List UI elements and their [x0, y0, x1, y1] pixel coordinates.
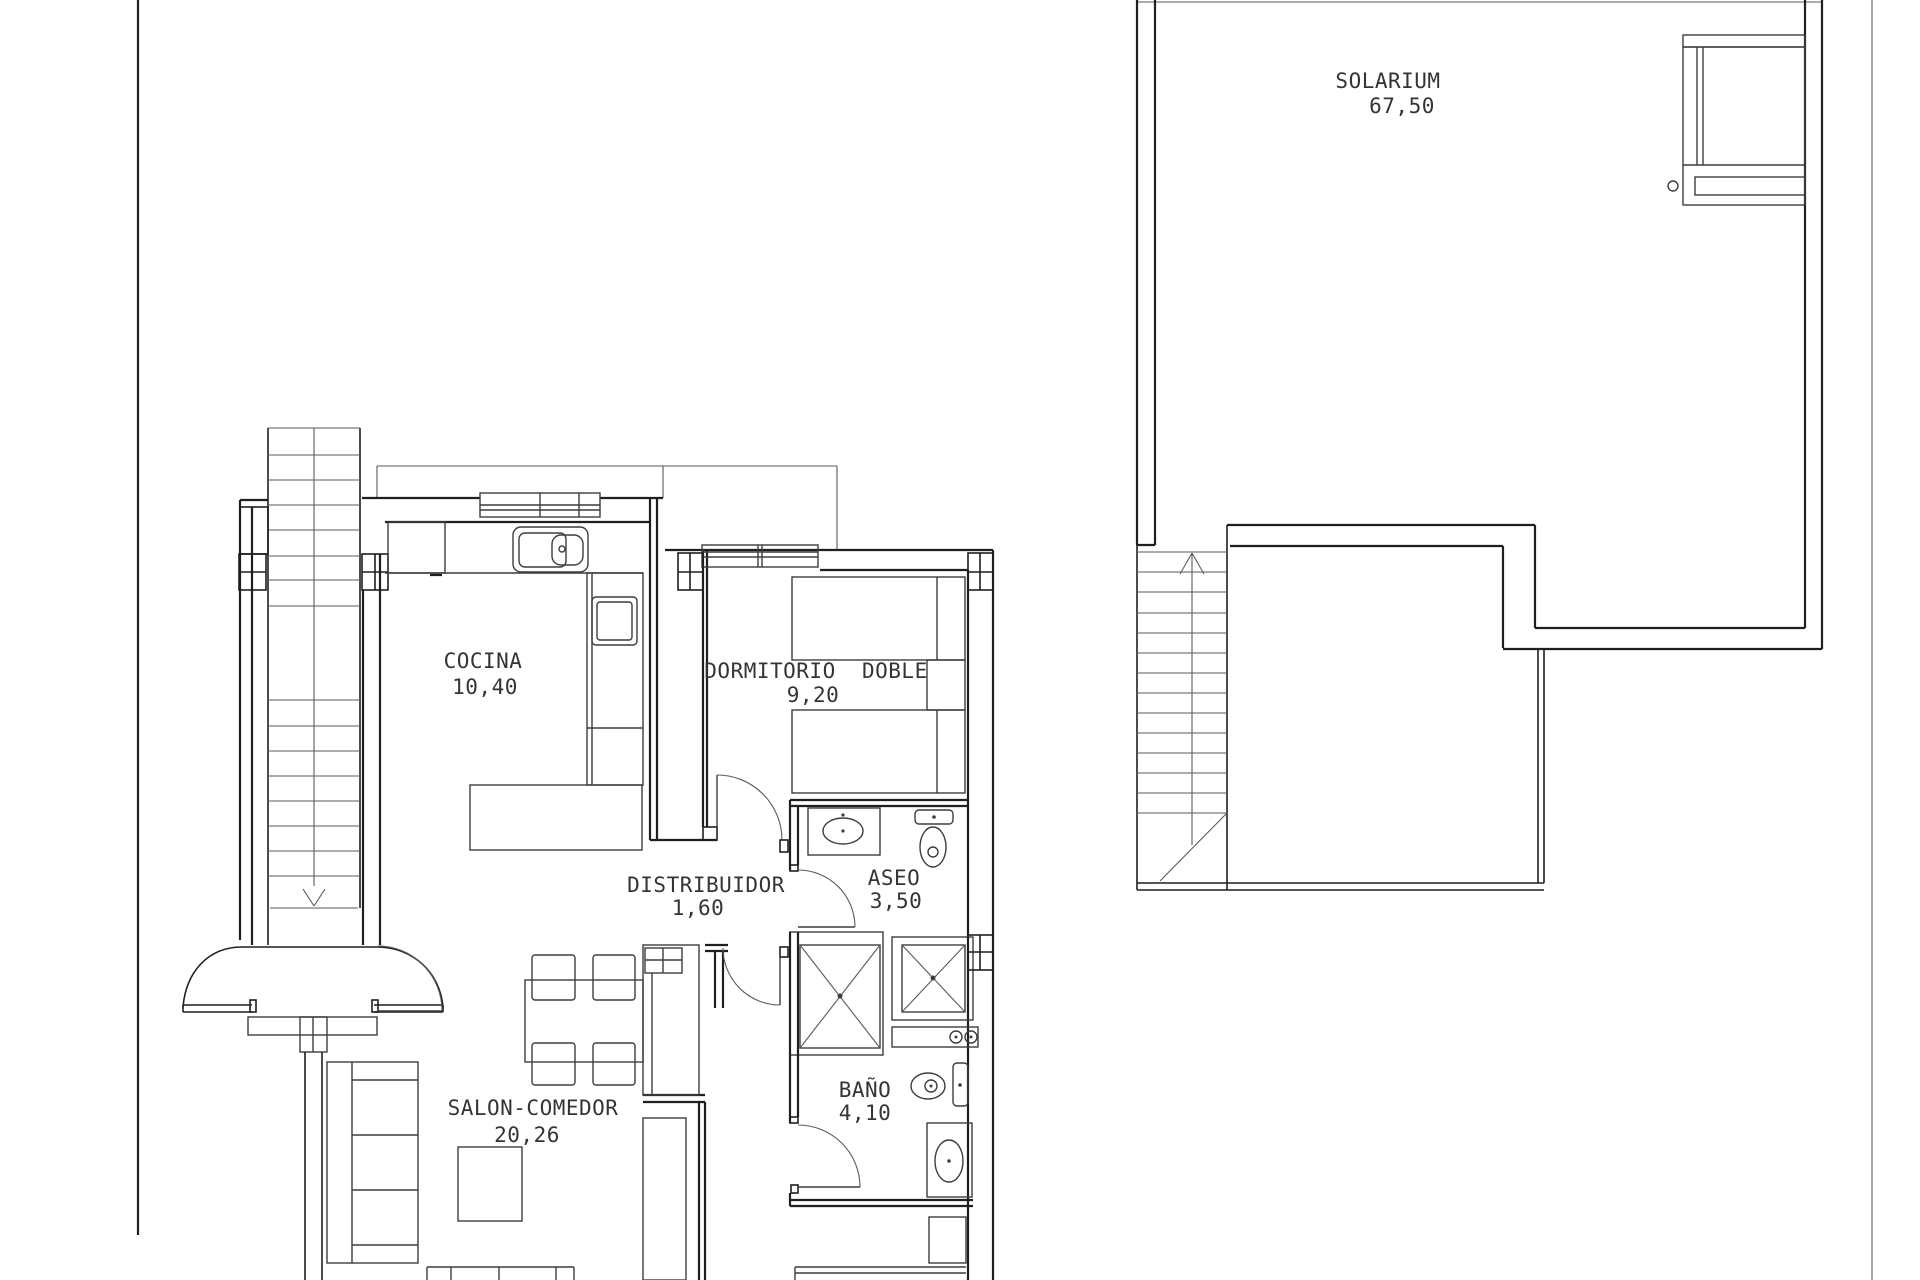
solarium-walls	[1137, 0, 1822, 649]
bed-2	[792, 710, 965, 793]
kitchen-peninsula	[470, 785, 642, 850]
room-label-bano: BAÑO	[839, 1076, 892, 1102]
door-jamb	[780, 947, 788, 957]
solarium-stairs	[1137, 525, 1227, 890]
washbasin	[808, 808, 880, 855]
room-label-aseo: ASEO	[868, 866, 921, 890]
chair	[532, 955, 575, 1000]
roof-outline	[377, 466, 837, 550]
dining-set	[525, 955, 643, 1085]
sofa	[327, 1062, 418, 1263]
room-area-aseo: 3,50	[870, 889, 923, 913]
facade-pilaster-left	[678, 553, 703, 590]
salon-hall-walls	[643, 945, 788, 1280]
door-jamb	[790, 865, 798, 871]
bedroom-2	[795, 1217, 966, 1280]
down-arrow-icon	[303, 428, 325, 906]
distribuidor: DISTRIBUIDOR 1,60	[627, 873, 785, 920]
bidet	[927, 1123, 972, 1197]
stair-cut-line	[1160, 813, 1227, 881]
solarium-planter	[1668, 35, 1805, 205]
room-label-cocina: COCINA	[444, 649, 523, 673]
door-jamb	[703, 827, 717, 840]
floor-plan-canvas: SOLARIUM 67,50	[0, 0, 1920, 1280]
kitchen-hob	[592, 597, 637, 645]
salon-door	[723, 948, 780, 1005]
kitchen: COCINA 10,40	[362, 493, 663, 850]
sideboard	[643, 945, 699, 1095]
up-arrow-icon	[1180, 553, 1204, 845]
shower-left	[790, 932, 883, 1055]
room-label-distribuidor: DISTRIBUIDOR	[627, 873, 785, 897]
wall-jamb-left	[239, 554, 266, 590]
chair	[593, 955, 635, 1000]
coffee-table	[458, 1147, 522, 1221]
chair	[593, 1043, 635, 1085]
room-area-solarium: 67,50	[1369, 94, 1435, 118]
room-area-salon: 20,26	[494, 1123, 560, 1147]
wall-jamb-right	[362, 554, 388, 590]
bedroom-door	[717, 775, 788, 852]
kitchen-window	[480, 493, 600, 517]
chair	[532, 1043, 575, 1085]
bano-walls	[790, 932, 973, 1206]
bed-1	[792, 577, 965, 660]
wall-jamb-bath	[968, 935, 993, 970]
room-label-dormitorio: DORMITORIO DOBLE	[704, 659, 927, 683]
bedroom-window	[702, 545, 818, 567]
dining-table	[525, 980, 643, 1062]
door-jamb	[790, 1117, 798, 1123]
aseo: ASEO 3,50	[790, 800, 968, 927]
nightstand	[927, 660, 965, 710]
bano-door	[798, 1125, 860, 1187]
entry-stairs	[268, 428, 360, 945]
bath-vanity	[892, 1027, 978, 1047]
room-area-dormitorio: 9,20	[787, 683, 840, 707]
aseo-door	[798, 870, 855, 927]
bano: BAÑO 4,10	[790, 932, 973, 1206]
room-label-solarium: SOLARIUM	[1335, 69, 1440, 93]
stairwell-enclosure	[1137, 525, 1822, 890]
plot-borders	[138, 0, 1872, 1280]
porch-canopy	[183, 947, 443, 1012]
toilet	[915, 810, 953, 867]
toilet-2	[911, 1063, 968, 1106]
solarium: SOLARIUM 67,50	[1137, 0, 1822, 890]
room-area-distribuidor: 1,60	[672, 896, 725, 920]
room-label-salon: SALON-COMEDOR	[448, 1096, 619, 1120]
tv-unit	[643, 1118, 686, 1280]
wardrobe	[929, 1217, 966, 1263]
bench	[427, 1267, 574, 1280]
shower-right	[892, 937, 973, 1020]
room-area-cocina: 10,40	[452, 675, 518, 699]
salon: SALON-COMEDOR 20,26	[327, 945, 788, 1280]
entry-threshold	[248, 1017, 377, 1280]
drain-symbol	[1668, 181, 1678, 191]
door-jamb	[791, 1185, 798, 1193]
room-area-bano: 4,10	[839, 1101, 892, 1125]
door-jamb	[780, 840, 788, 852]
kitchen-sink	[513, 527, 588, 572]
facade-pilaster-right	[968, 553, 993, 590]
